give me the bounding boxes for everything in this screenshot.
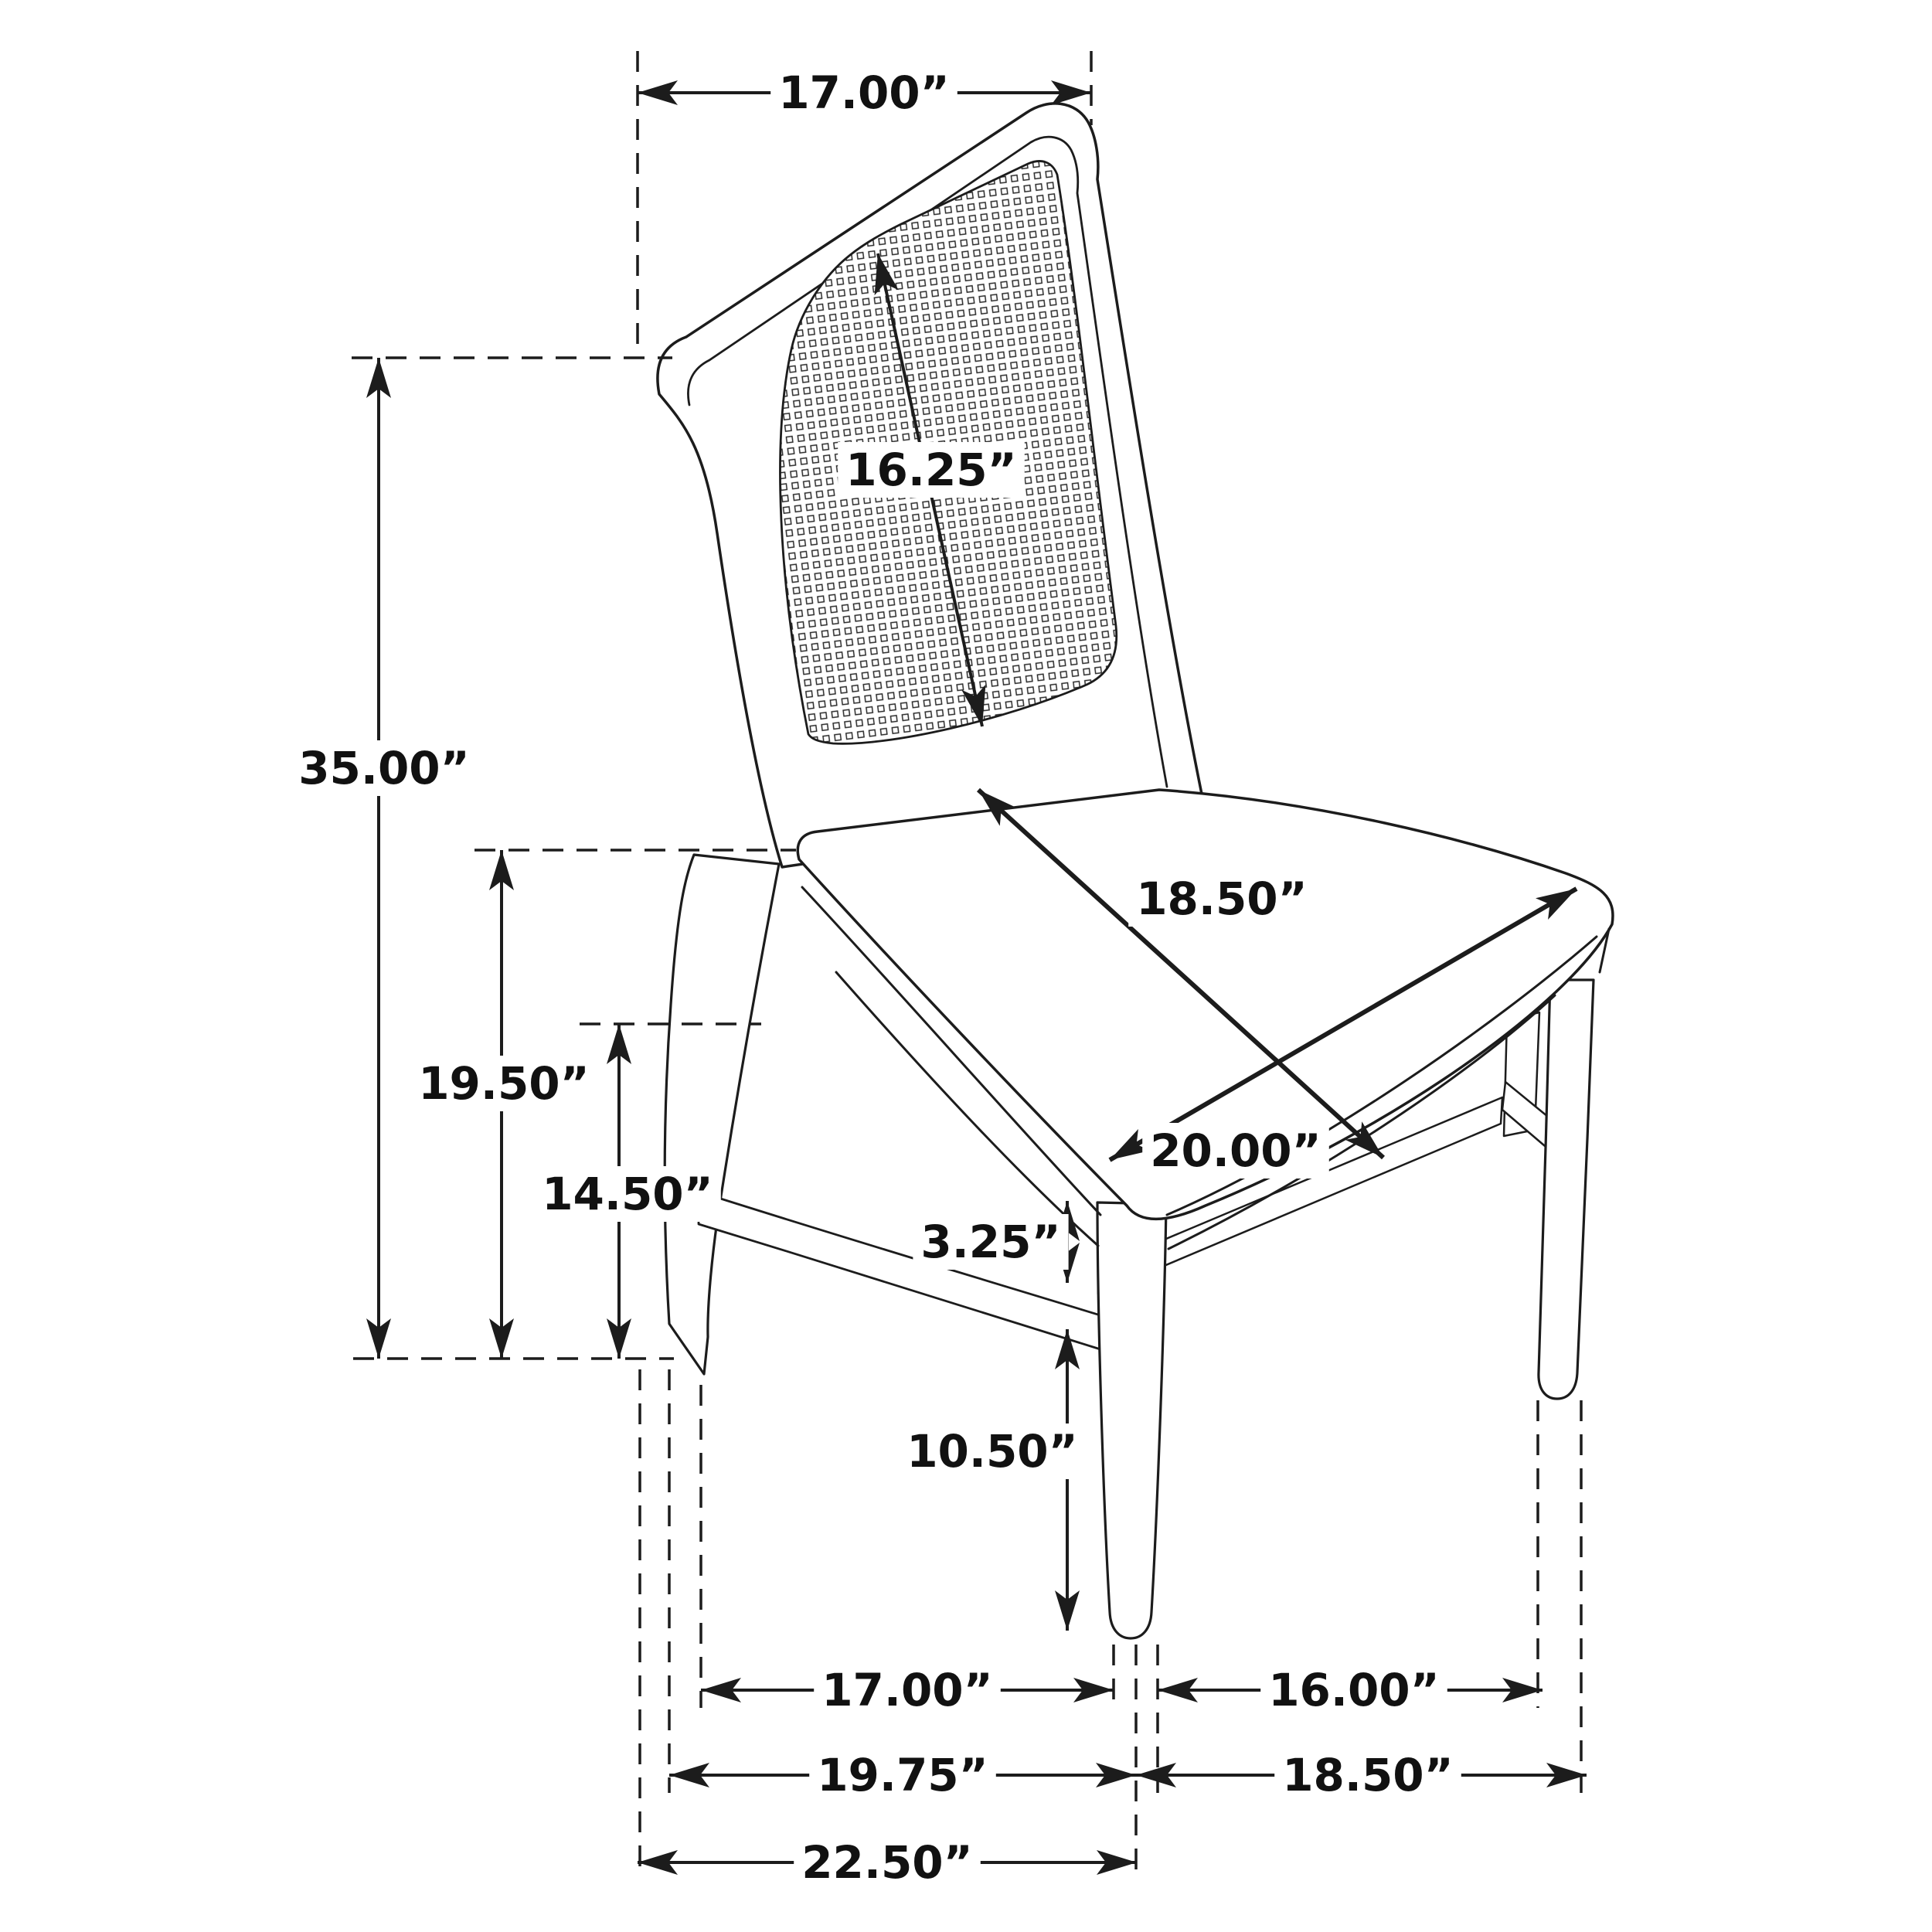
dim-label-seat-depth: 18.50” [1136,872,1308,925]
dim-label-floor-to-stretcher: 10.50” [906,1425,1078,1478]
dim-label-overall-height: 35.00” [298,742,470,794]
dim-label-overall-depth: 22.50” [801,1836,973,1889]
dim-label-leg-span-side: 17.00” [821,1664,993,1716]
dim-label-back-panel-height: 16.25” [845,444,1017,496]
dim-label-apron-stretcher-gap: 3.25” [920,1216,1060,1268]
dim-label-apron-height: 14.50” [542,1168,713,1220]
dim-label-seat-height: 19.50” [418,1057,590,1110]
dim-label-seat-width: 20.00” [1150,1124,1321,1177]
dim-label-front-leg-width: 16.00” [1268,1664,1440,1716]
chair-dimension-diagram: 17.00”16.25”35.00”19.50”14.50”18.50”20.0… [0,0,1932,1932]
dim-label-leg-depth-span: 19.75” [817,1749,988,1801]
dim-label-rear-leg-width: 18.50” [1282,1749,1454,1801]
dim-label-back-width-top: 17.00” [778,66,950,119]
